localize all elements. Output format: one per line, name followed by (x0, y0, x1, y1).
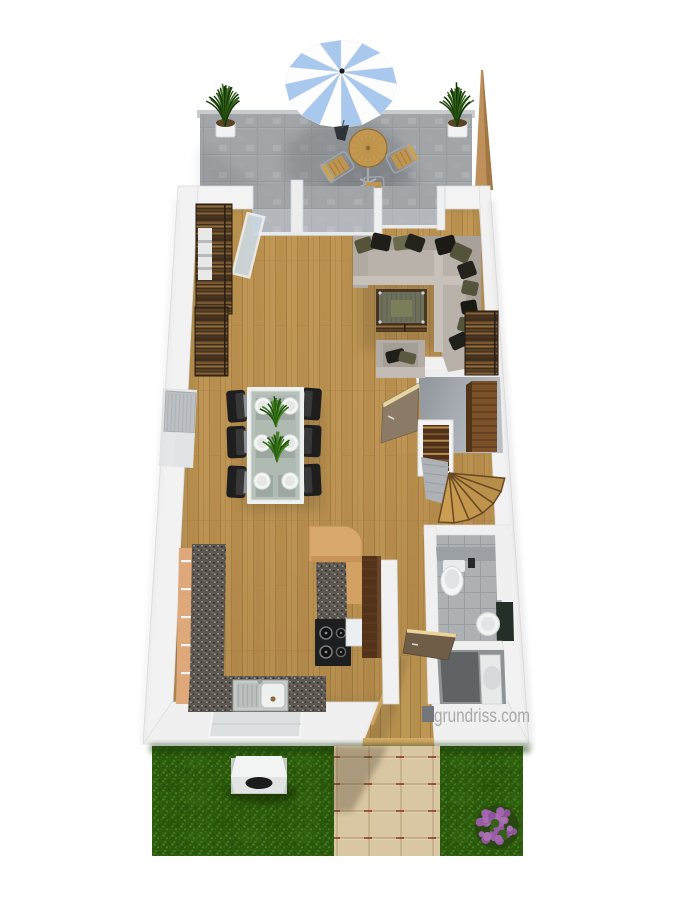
svg-text:grundriss.com: grundriss.com (434, 706, 530, 727)
